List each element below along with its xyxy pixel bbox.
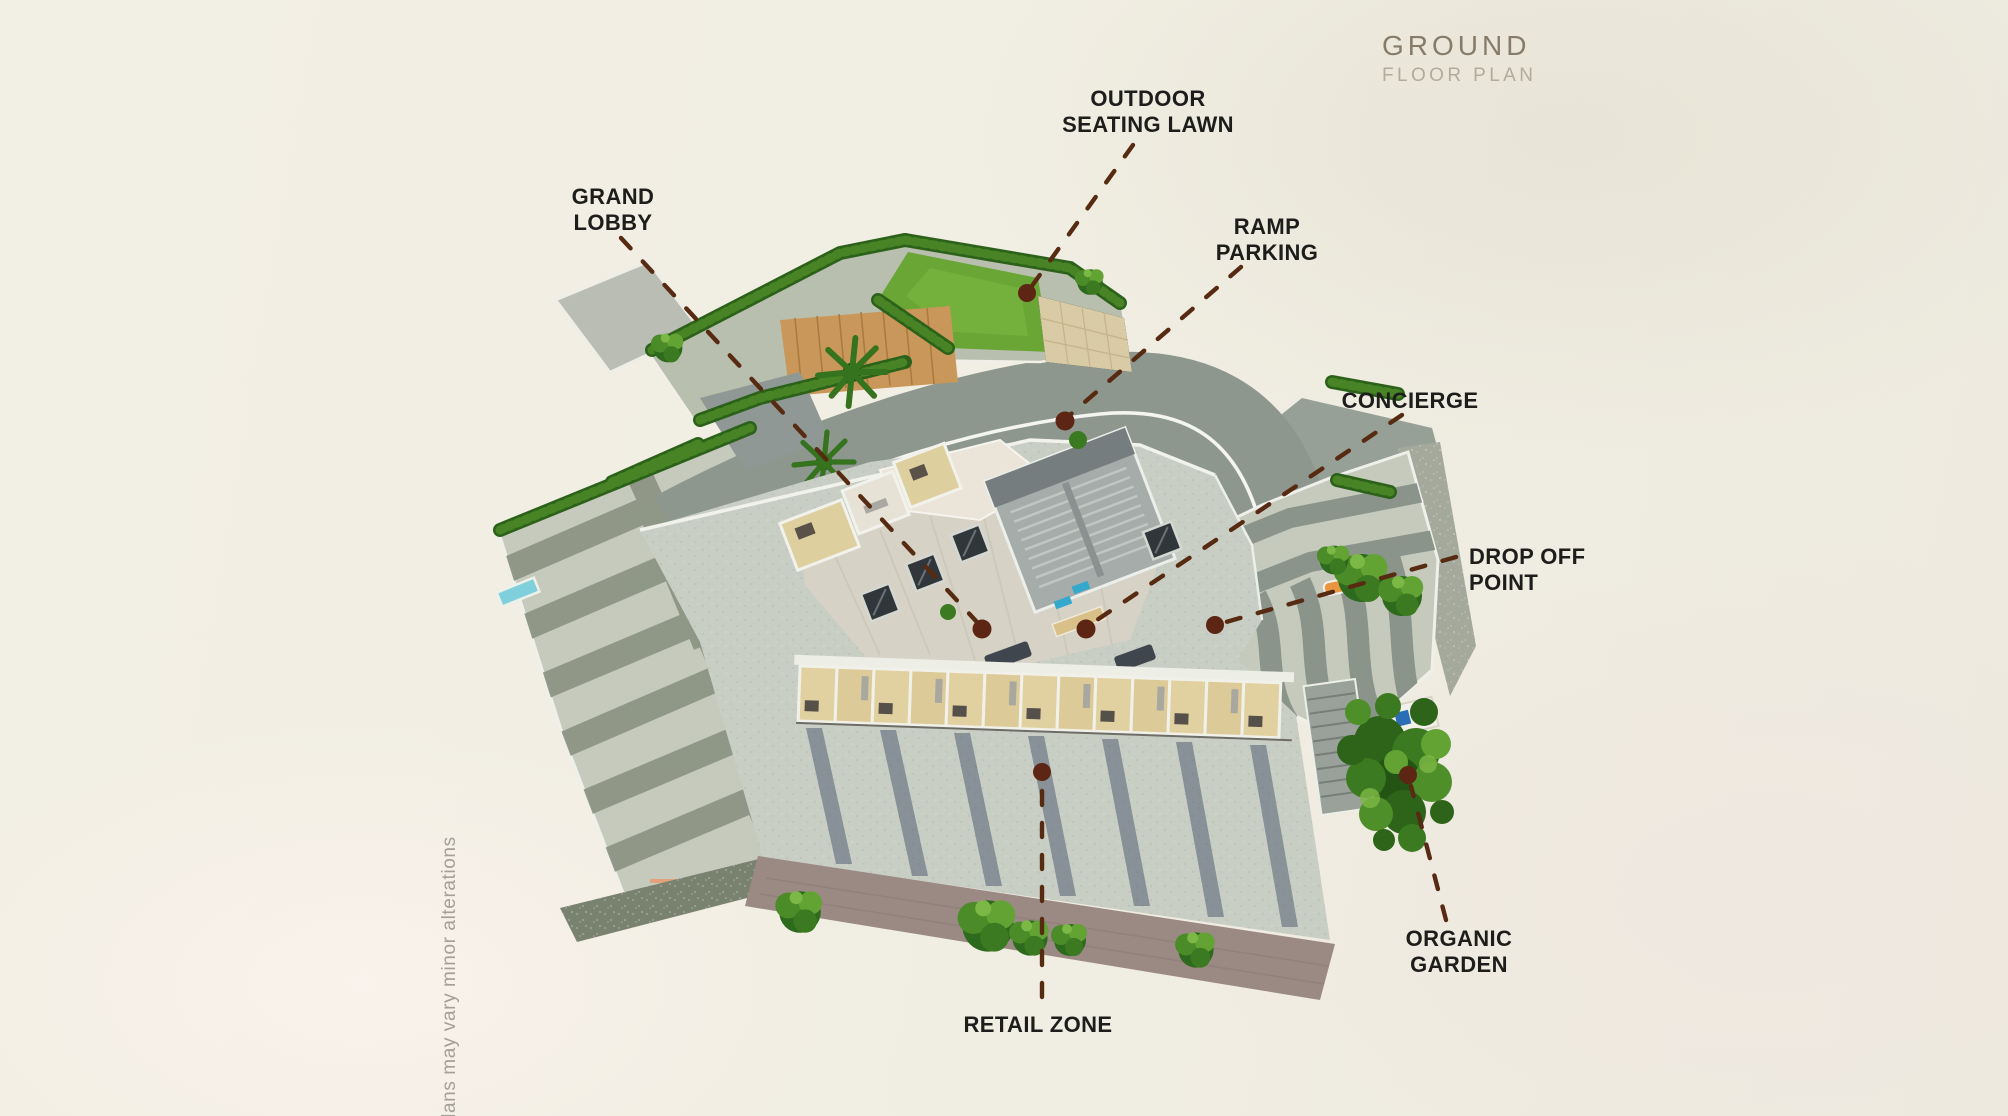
dot-retail-zone bbox=[1033, 763, 1051, 781]
label-line: SEATING LAWN bbox=[1062, 112, 1234, 137]
label-drop-off-point: DROP OFF POINT bbox=[1469, 544, 1669, 596]
palm-tree bbox=[818, 338, 886, 406]
label-line: CONCIERGE bbox=[1342, 388, 1479, 413]
dot-concierge bbox=[1077, 620, 1096, 639]
dot-organic-garden bbox=[1399, 766, 1417, 784]
disclaimer-text: plans may vary minor alterations bbox=[439, 836, 461, 1116]
label-outdoor-seating-lawn: OUTDOOR SEATING LAWN bbox=[1023, 86, 1273, 138]
plan-title-primary: GROUND bbox=[1382, 30, 1536, 62]
label-line: RETAIL ZONE bbox=[963, 1012, 1112, 1037]
label-line: ORGANIC bbox=[1406, 926, 1513, 951]
dot-drop-off-point bbox=[1206, 616, 1224, 634]
label-concierge: CONCIERGE bbox=[1290, 388, 1530, 414]
label-line: GRAND bbox=[572, 184, 655, 209]
dot-grand-lobby bbox=[973, 620, 992, 639]
label-line: POINT bbox=[1469, 570, 1538, 595]
ground-floor-plan-page: OUTDOOR SEATING LAWN GRAND LOBBY RAMP PA… bbox=[0, 0, 2008, 1116]
label-line: RAMP bbox=[1234, 214, 1300, 239]
label-organic-garden: ORGANIC GARDEN bbox=[1339, 926, 1579, 978]
label-ramp-parking: RAMP PARKING bbox=[1147, 214, 1387, 266]
plan-title-secondary: FLOOR PLAN bbox=[1382, 65, 1536, 87]
label-line: LOBBY bbox=[574, 210, 653, 235]
label-line: PARKING bbox=[1216, 240, 1319, 265]
dot-outdoor-seating-lawn bbox=[1018, 284, 1036, 302]
label-grand-lobby: GRAND LOBBY bbox=[493, 184, 733, 236]
organic-garden-area bbox=[1303, 679, 1454, 852]
label-line: DROP OFF bbox=[1469, 544, 1585, 569]
label-line: GARDEN bbox=[1410, 952, 1508, 977]
label-line: OUTDOOR bbox=[1090, 86, 1205, 111]
floor-plan-rendering bbox=[0, 0, 2008, 1116]
dot-ramp-parking bbox=[1056, 412, 1075, 431]
label-retail-zone: RETAIL ZONE bbox=[918, 1012, 1158, 1038]
plan-title: GROUND FLOOR PLAN bbox=[1382, 30, 1536, 87]
